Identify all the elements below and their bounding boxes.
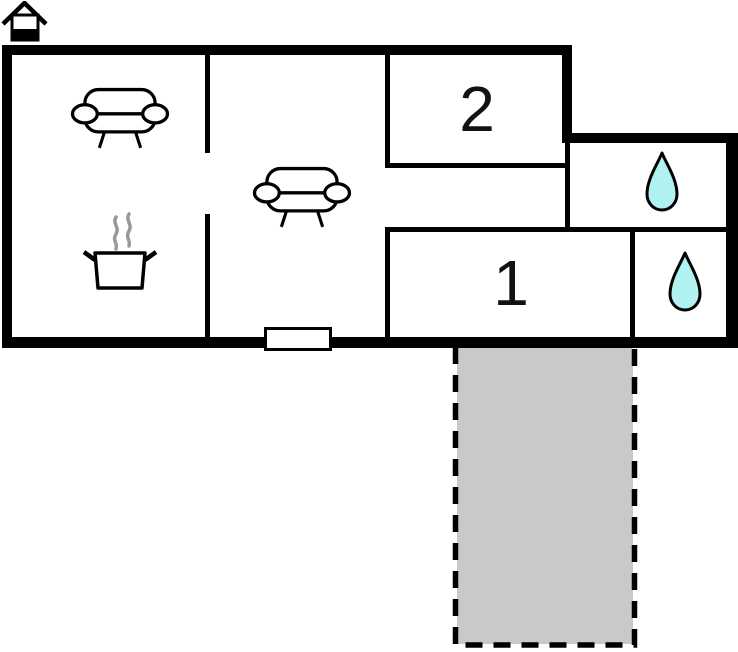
water-drop-icon: [667, 251, 703, 313]
terrace-dashed-border: [450, 346, 640, 652]
wall-bathroom-top-left: [565, 143, 570, 232]
room-2-label: 2: [390, 55, 562, 163]
floor-plan: 2 1: [0, 0, 738, 652]
wall-room2-bottom: [385, 163, 567, 168]
wall-partition-upper: [205, 55, 210, 153]
wall-outer-right: [726, 133, 738, 348]
steam-icon: [128, 214, 131, 246]
wall-partition-lower: [205, 214, 210, 337]
steam-icon: [115, 217, 118, 249]
sofa-icon: [252, 166, 352, 230]
water-drop-icon: [644, 151, 680, 213]
entrance-door: [264, 327, 332, 351]
wall-step-vertical: [562, 45, 572, 143]
sofa-icon: [70, 87, 170, 151]
house-icon: [1, 1, 49, 42]
wall-outer-left: [2, 45, 12, 348]
room-1-label: 1: [390, 230, 630, 335]
wall-outer-bottom: [2, 337, 737, 348]
cooking-pot-icon: [80, 210, 160, 292]
wall-bathroom-divider: [630, 227, 635, 337]
wall-upper-right: [562, 133, 738, 143]
wall-outer-top: [2, 45, 572, 55]
